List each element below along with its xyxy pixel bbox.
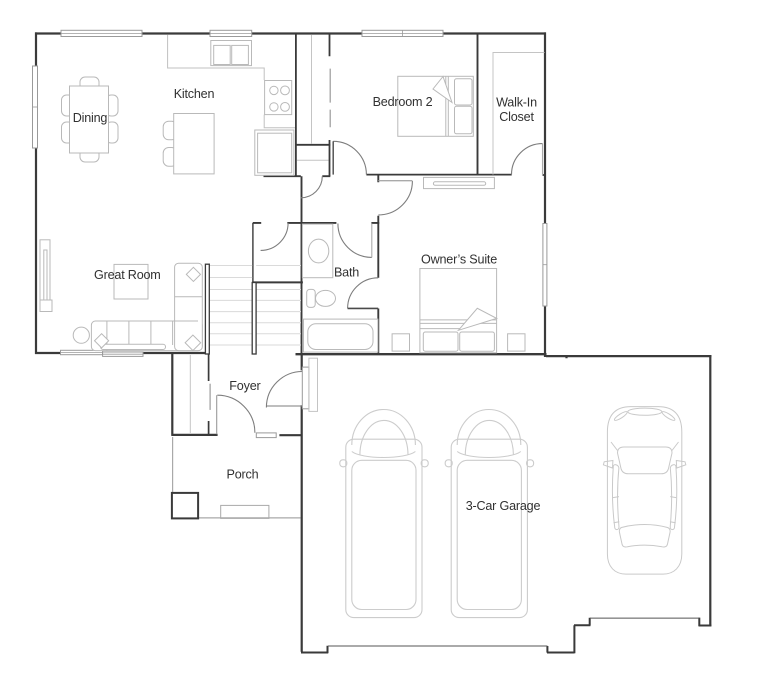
svg-text:Bath: Bath: [334, 266, 359, 280]
svg-text:Walk-In: Walk-In: [496, 96, 537, 110]
svg-text:Great Room: Great Room: [94, 268, 161, 282]
svg-text:Foyer: Foyer: [229, 379, 260, 393]
svg-text:Closet: Closet: [499, 110, 534, 124]
svg-text:3-Car Garage: 3-Car Garage: [466, 499, 541, 513]
svg-text:Dining: Dining: [73, 111, 108, 125]
svg-text:Bedroom 2: Bedroom 2: [373, 95, 433, 109]
svg-text:Owner’s Suite: Owner’s Suite: [421, 253, 497, 267]
svg-text:Kitchen: Kitchen: [174, 87, 215, 101]
svg-text:Porch: Porch: [227, 468, 259, 482]
